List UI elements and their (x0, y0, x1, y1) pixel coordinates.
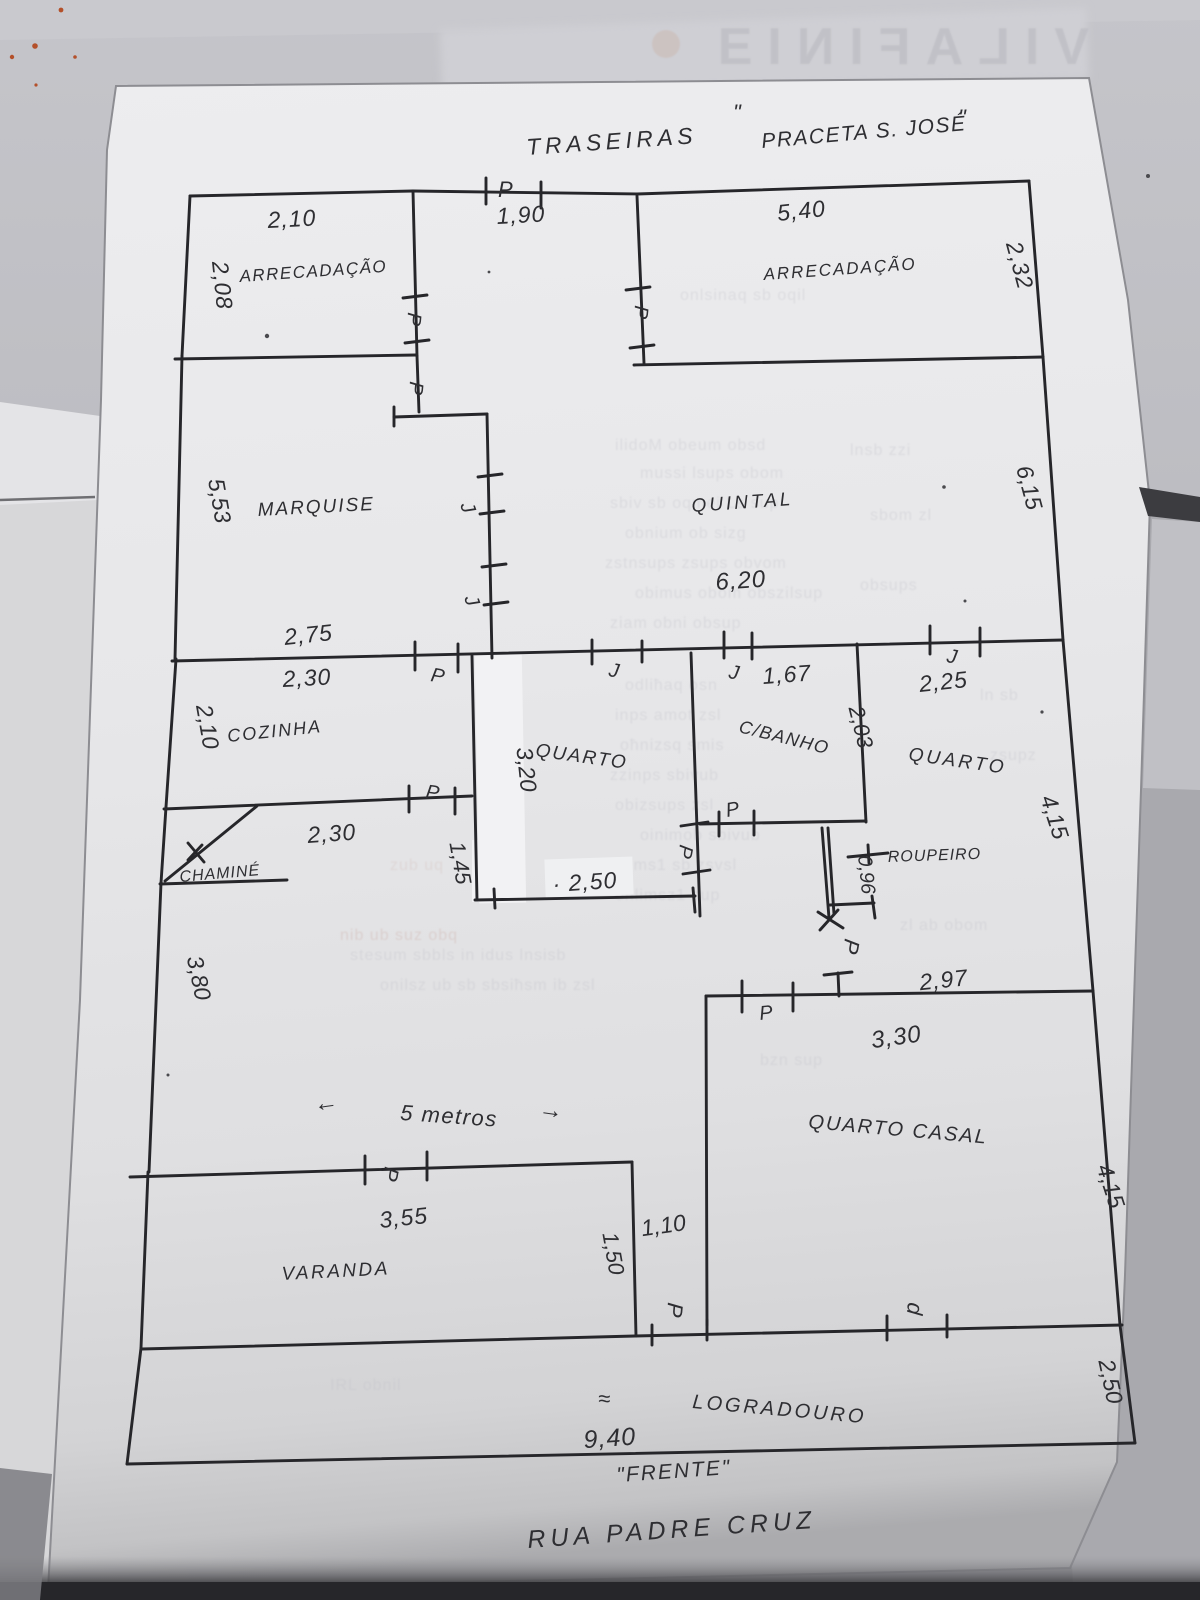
svg-text:3,55: 3,55 (378, 1202, 429, 1233)
svg-text:P: P (662, 1302, 688, 1319)
svg-text:2,30: 2,30 (281, 663, 332, 692)
svg-text:2,10: 2,10 (266, 204, 317, 233)
svg-text:oinimob sbivub: oinimob sbivub (640, 827, 761, 844)
svg-text:": " (958, 105, 967, 130)
svg-text:oħnizsq smis: oħnizsq smis (620, 737, 724, 754)
svg-text:2,25: 2,25 (917, 666, 969, 697)
svg-text:obnium ob sizg: obnium ob sizg (625, 525, 747, 542)
svg-text:": " (733, 100, 742, 125)
svg-text:2,97: 2,97 (917, 964, 969, 995)
svg-text:6,20: 6,20 (715, 566, 767, 596)
svg-text:2,75: 2,75 (282, 619, 334, 650)
svg-text:ln sb: ln sb (980, 687, 1019, 704)
svg-text:P: P (402, 312, 425, 328)
svg-text:inps amot zsl: inps amot zsl (615, 707, 721, 724)
svg-text:mussi lsups obom: mussi lsups obom (640, 465, 784, 482)
svg-text:←: ← (312, 1088, 340, 1118)
svg-text:nib ub suz obq: nib ub suz obq (340, 927, 458, 944)
svg-text:zub uq: zub uq (390, 857, 444, 874)
svg-text:1,67: 1,67 (762, 660, 813, 689)
svg-text:P: P (498, 177, 513, 202)
svg-text:→: → (537, 1095, 565, 1125)
svg-text:onlsinaq sb oqil: onlsinaq sb oqil (680, 287, 806, 304)
svg-text:obizsups zsl: obizsups zsl (615, 797, 714, 814)
svg-text:bzn sup: bzn sup (760, 1052, 823, 1069)
svg-text:9,40: 9,40 (583, 1423, 637, 1455)
svg-text:· 2,50: · 2,50 (552, 867, 618, 897)
svg-text:ilidoM obeum obsd: ilidoM obeum obsd (615, 437, 766, 454)
svg-text:0,96: 0,96 (853, 854, 879, 896)
svg-text:sbom zl: sbom zl (870, 507, 932, 524)
svg-text:onilsz ub sb sbsiħsm ib zsl: onilsz ub sb sbsiħsm ib zsl (380, 977, 596, 994)
svg-text:1,90: 1,90 (496, 200, 546, 229)
svg-text:zl ab obom: zl ab obom (900, 917, 988, 934)
svg-text:3,20: 3,20 (511, 746, 542, 793)
svg-text:stesum sbbls in idus lnsisb: stesum sbbls in idus lnsisb (350, 947, 566, 964)
svg-text:IRL obnil: IRL obnil (330, 1377, 402, 1394)
svg-text:ROUPEIRO: ROUPEIRO (888, 846, 982, 866)
svg-text:P: P (629, 305, 652, 321)
svg-text:VILAFINIƎ: VILAFINIƎ (703, 18, 1089, 76)
svg-text:lnsb zzi: lnsb zzi (850, 442, 911, 459)
svg-text:2,08: 2,08 (207, 259, 238, 311)
svg-text:odliħaq osn: odliħaq osn (625, 677, 718, 694)
svg-text:ziam obni obsup: ziam obni obsup (610, 615, 742, 632)
svg-text:5,40: 5,40 (776, 195, 827, 226)
svg-text:obsups: obsups (860, 577, 918, 594)
svg-text:2,30: 2,30 (306, 819, 357, 848)
svg-text:≈: ≈ (598, 1386, 610, 1411)
svg-text:P: P (404, 381, 427, 397)
